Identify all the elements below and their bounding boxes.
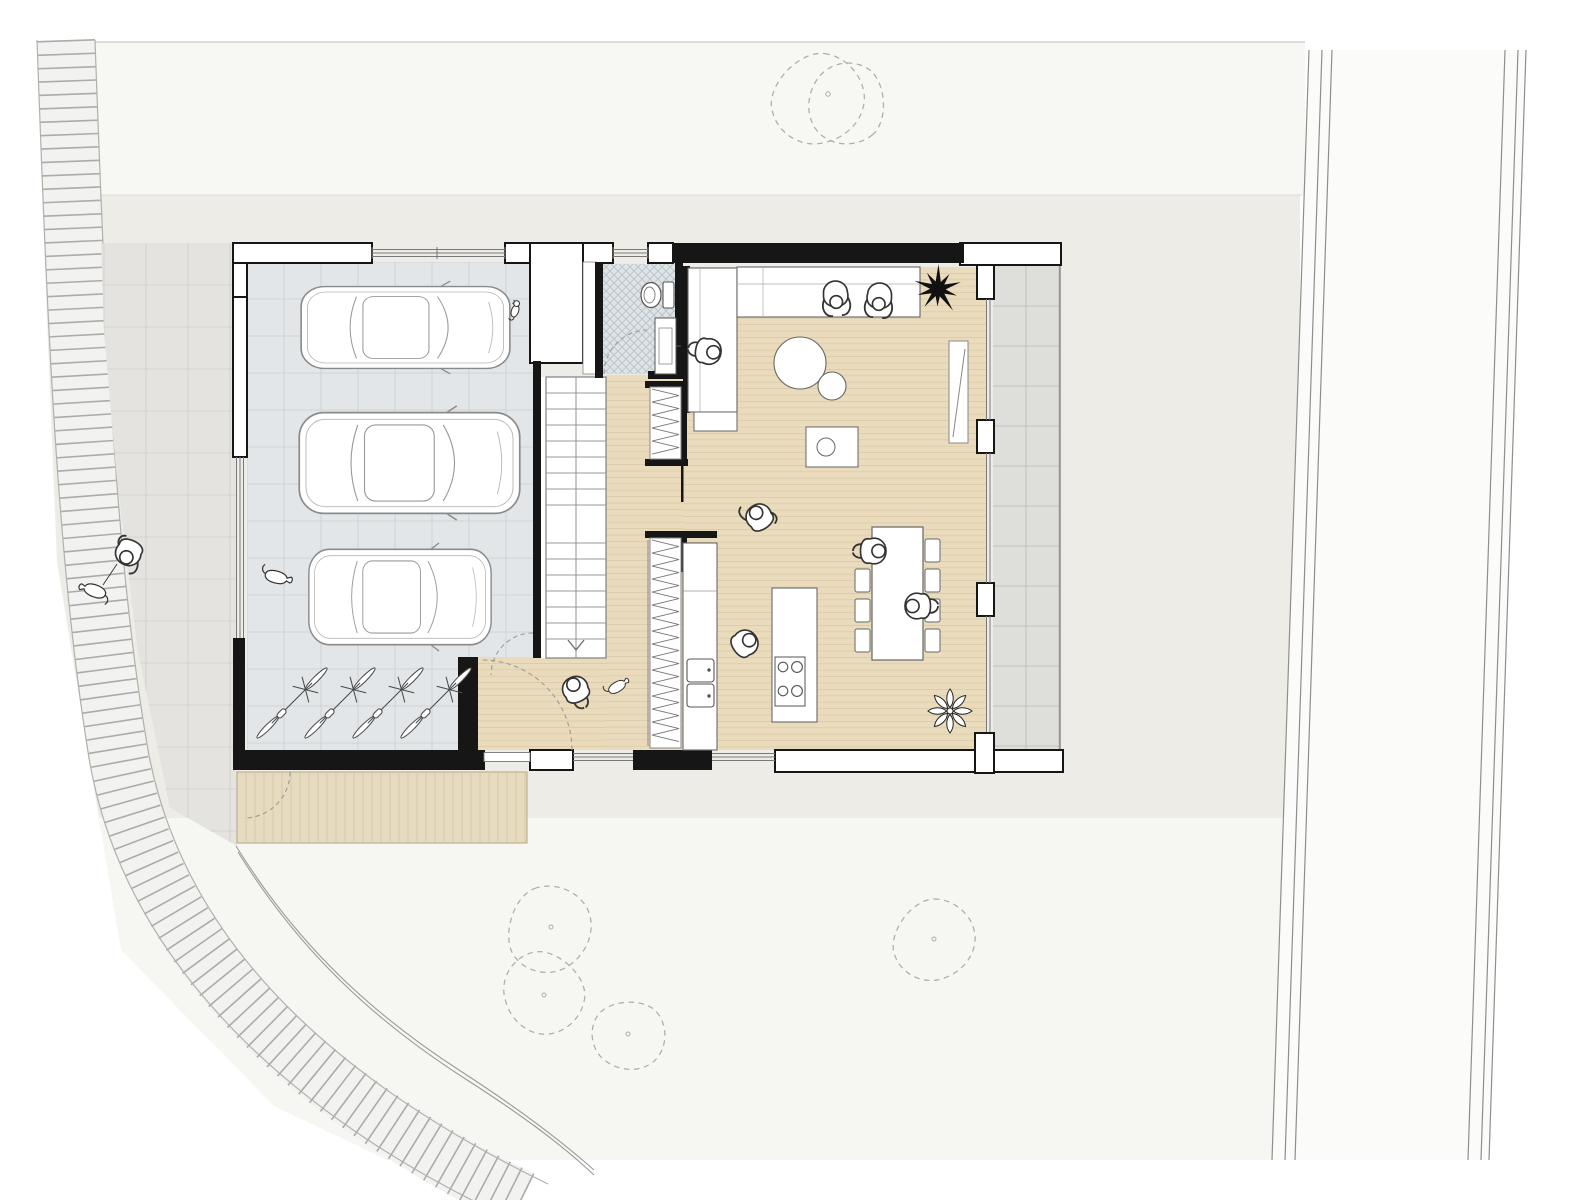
sofa-foot — [694, 412, 737, 431]
living-north-wall — [672, 243, 964, 263]
terrace-pier — [977, 265, 994, 299]
glass-wall-pier — [975, 733, 994, 773]
road-surface — [1272, 50, 1526, 1160]
entry-door-leaf — [484, 753, 530, 762]
sink-drain — [707, 694, 710, 697]
terrace-paving — [993, 266, 1060, 750]
cooktop-burner — [792, 662, 803, 673]
dining-chair — [925, 539, 940, 562]
potted-plant-light — [928, 689, 972, 733]
cooktop-burner — [778, 662, 788, 672]
kitchen-counter — [683, 543, 717, 750]
layer-deck — [237, 772, 527, 843]
garage-south-wall — [233, 750, 485, 770]
floor-plan-canvas — [0, 0, 1589, 1200]
car — [309, 543, 491, 651]
neighbor-band — [38, 42, 1305, 195]
car — [301, 281, 510, 374]
garage-hall-wall — [533, 361, 541, 658]
dining-chair — [925, 629, 940, 652]
sink-drain — [707, 668, 710, 671]
terrace-wall — [960, 243, 1061, 265]
layer-road-right — [1272, 50, 1526, 1160]
dining-chair — [925, 569, 940, 592]
pouf — [818, 372, 846, 400]
exterior-wall — [648, 243, 673, 263]
car — [299, 406, 520, 520]
south-wall — [633, 750, 712, 770]
leaning-mirror — [949, 341, 968, 443]
glass-wall-pier — [977, 583, 994, 616]
entry-deck — [237, 772, 527, 843]
dining-chair — [855, 569, 870, 592]
stair-gap — [541, 377, 546, 658]
exterior-wall — [233, 263, 247, 299]
toilet-tank — [663, 282, 674, 308]
garage-west-wall — [233, 638, 245, 752]
dining-chair — [855, 629, 870, 652]
exterior-wall — [530, 243, 583, 363]
glass-wall-pier — [977, 420, 994, 453]
layer-closets — [648, 387, 681, 748]
vanity-sink — [655, 318, 676, 374]
shaft-strip — [583, 262, 596, 374]
exterior-wall — [775, 750, 1063, 772]
dining-chair — [855, 599, 870, 622]
exterior-wall — [530, 750, 573, 770]
kitchen-wall-stub — [645, 531, 717, 538]
layer-stairs — [541, 377, 606, 658]
cooktop-burner — [792, 686, 803, 697]
entry-floor — [478, 657, 606, 750]
closet-cap — [645, 459, 688, 466]
pouf — [774, 337, 826, 389]
coffee-table-bowl — [817, 438, 835, 456]
screen-wall — [681, 466, 684, 502]
exterior-wall — [233, 297, 247, 457]
exterior-wall — [233, 243, 372, 263]
bath-west-wall — [595, 262, 603, 378]
floor-plan-page — [0, 0, 1589, 1200]
cooktop-burner — [778, 686, 788, 696]
